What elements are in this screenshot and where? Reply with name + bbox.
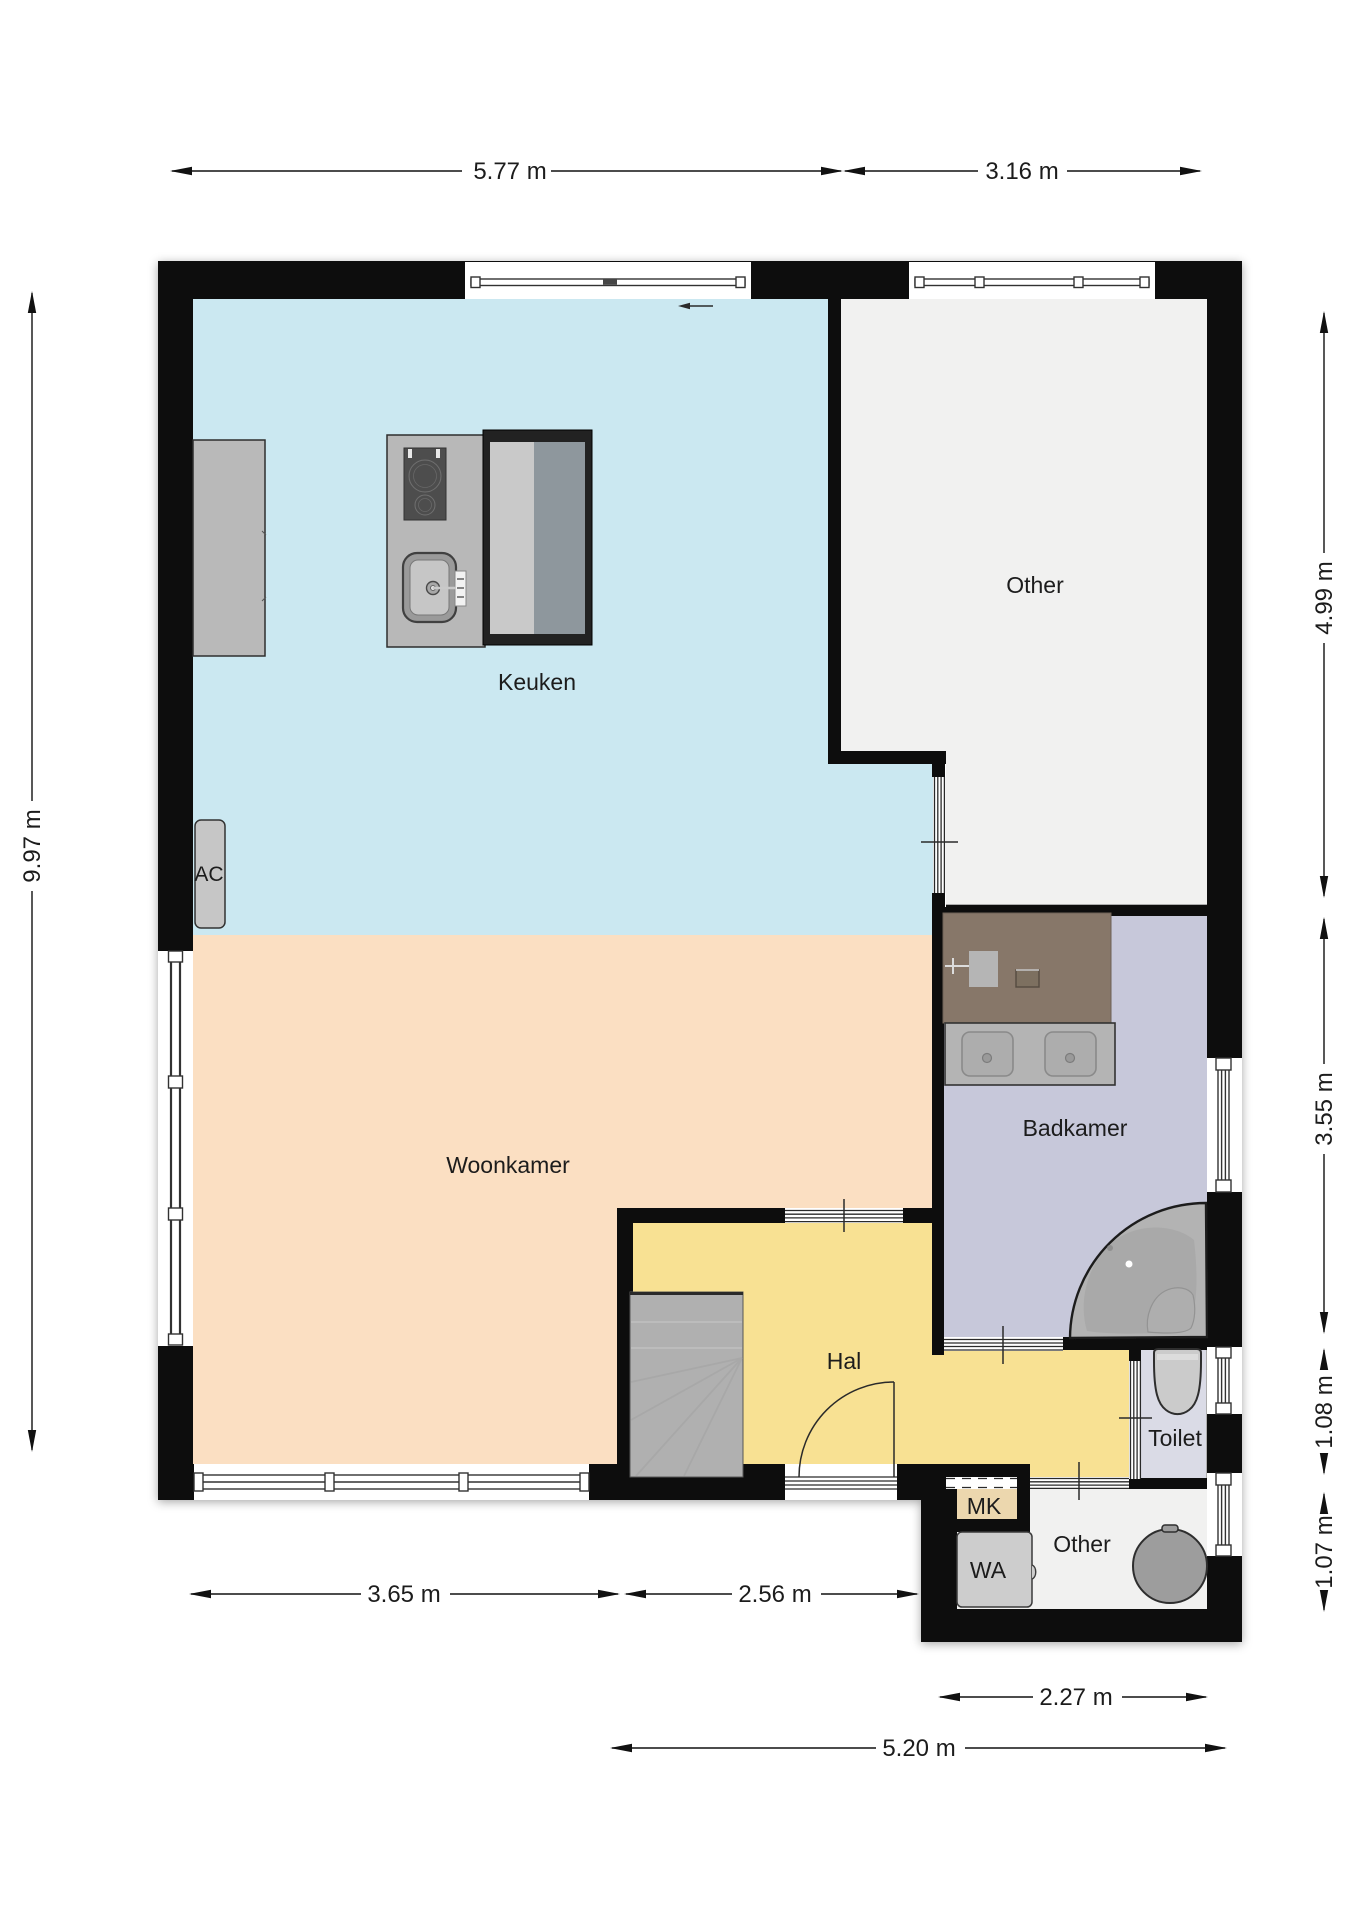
svg-text:Badkamer: Badkamer [1023, 1115, 1128, 1141]
svg-text:4.99 m: 4.99 m [1311, 561, 1338, 634]
svg-text:Hal: Hal [827, 1348, 862, 1374]
svg-text:Toilet: Toilet [1148, 1425, 1202, 1451]
svg-text:Other: Other [1053, 1531, 1111, 1557]
svg-text:Woonkamer: Woonkamer [446, 1152, 570, 1178]
svg-text:WA: WA [970, 1557, 1007, 1583]
svg-text:9.97 m: 9.97 m [19, 809, 46, 882]
svg-text:AC: AC [194, 863, 223, 886]
svg-text:3.55 m: 3.55 m [1311, 1072, 1338, 1145]
svg-text:1.07 m: 1.07 m [1311, 1515, 1338, 1588]
svg-text:5.77 m: 5.77 m [473, 158, 546, 185]
svg-text:5.20 m: 5.20 m [882, 1735, 955, 1762]
svg-text:2.56 m: 2.56 m [738, 1581, 811, 1608]
svg-text:MK: MK [967, 1493, 1002, 1519]
svg-text:2.27 m: 2.27 m [1039, 1684, 1112, 1711]
svg-text:1.08 m: 1.08 m [1311, 1375, 1338, 1448]
svg-text:Other: Other [1006, 572, 1064, 598]
svg-text:3.65 m: 3.65 m [367, 1581, 440, 1608]
svg-text:Keuken: Keuken [498, 669, 576, 695]
svg-text:3.16 m: 3.16 m [985, 158, 1058, 185]
